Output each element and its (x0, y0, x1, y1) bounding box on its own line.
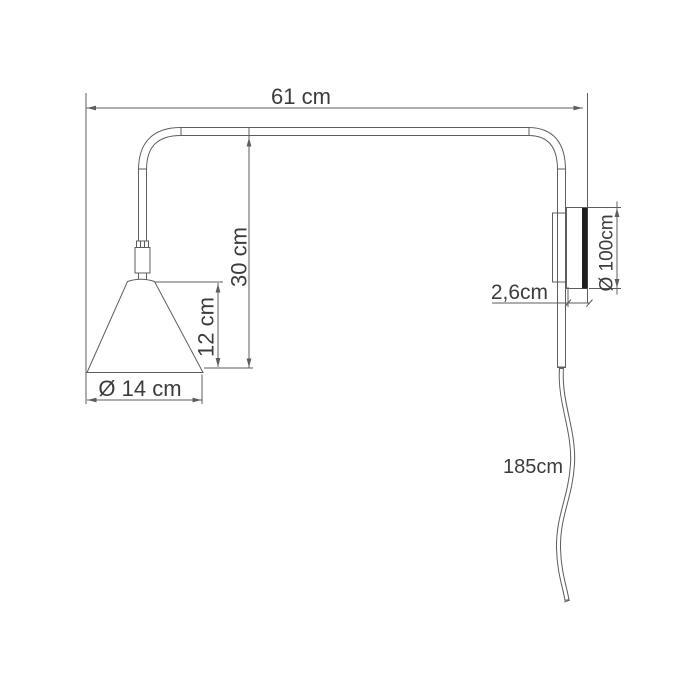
dimension-shade-diameter: Ø 14 cm (87, 375, 202, 405)
wall-plate-edge (582, 208, 588, 289)
plate-diameter-label: Ø 100cm (597, 214, 618, 291)
socket-neck (139, 273, 147, 280)
technical-drawing-svg: 61 cm 30 cm 12 cm Ø 14 cm 2,6cm (0, 0, 688, 688)
socket-collar (137, 241, 149, 248)
shade-diameter-label: Ø 14 cm (98, 376, 181, 401)
drop-height-label: 30 cm (227, 227, 252, 287)
cord-length-label: 185cm (503, 456, 563, 478)
plate-depth-label: 2,6cm (491, 281, 548, 304)
shade-cone (87, 279, 203, 372)
socket-body (135, 248, 150, 274)
socket (135, 241, 150, 280)
arm-length-label: 61 cm (271, 84, 331, 109)
power-cord (558, 368, 572, 602)
lamp-dimension-diagram: 61 cm 30 cm 12 cm Ø 14 cm 2,6cm (0, 0, 688, 688)
shade-height-label: 12 cm (194, 297, 219, 357)
